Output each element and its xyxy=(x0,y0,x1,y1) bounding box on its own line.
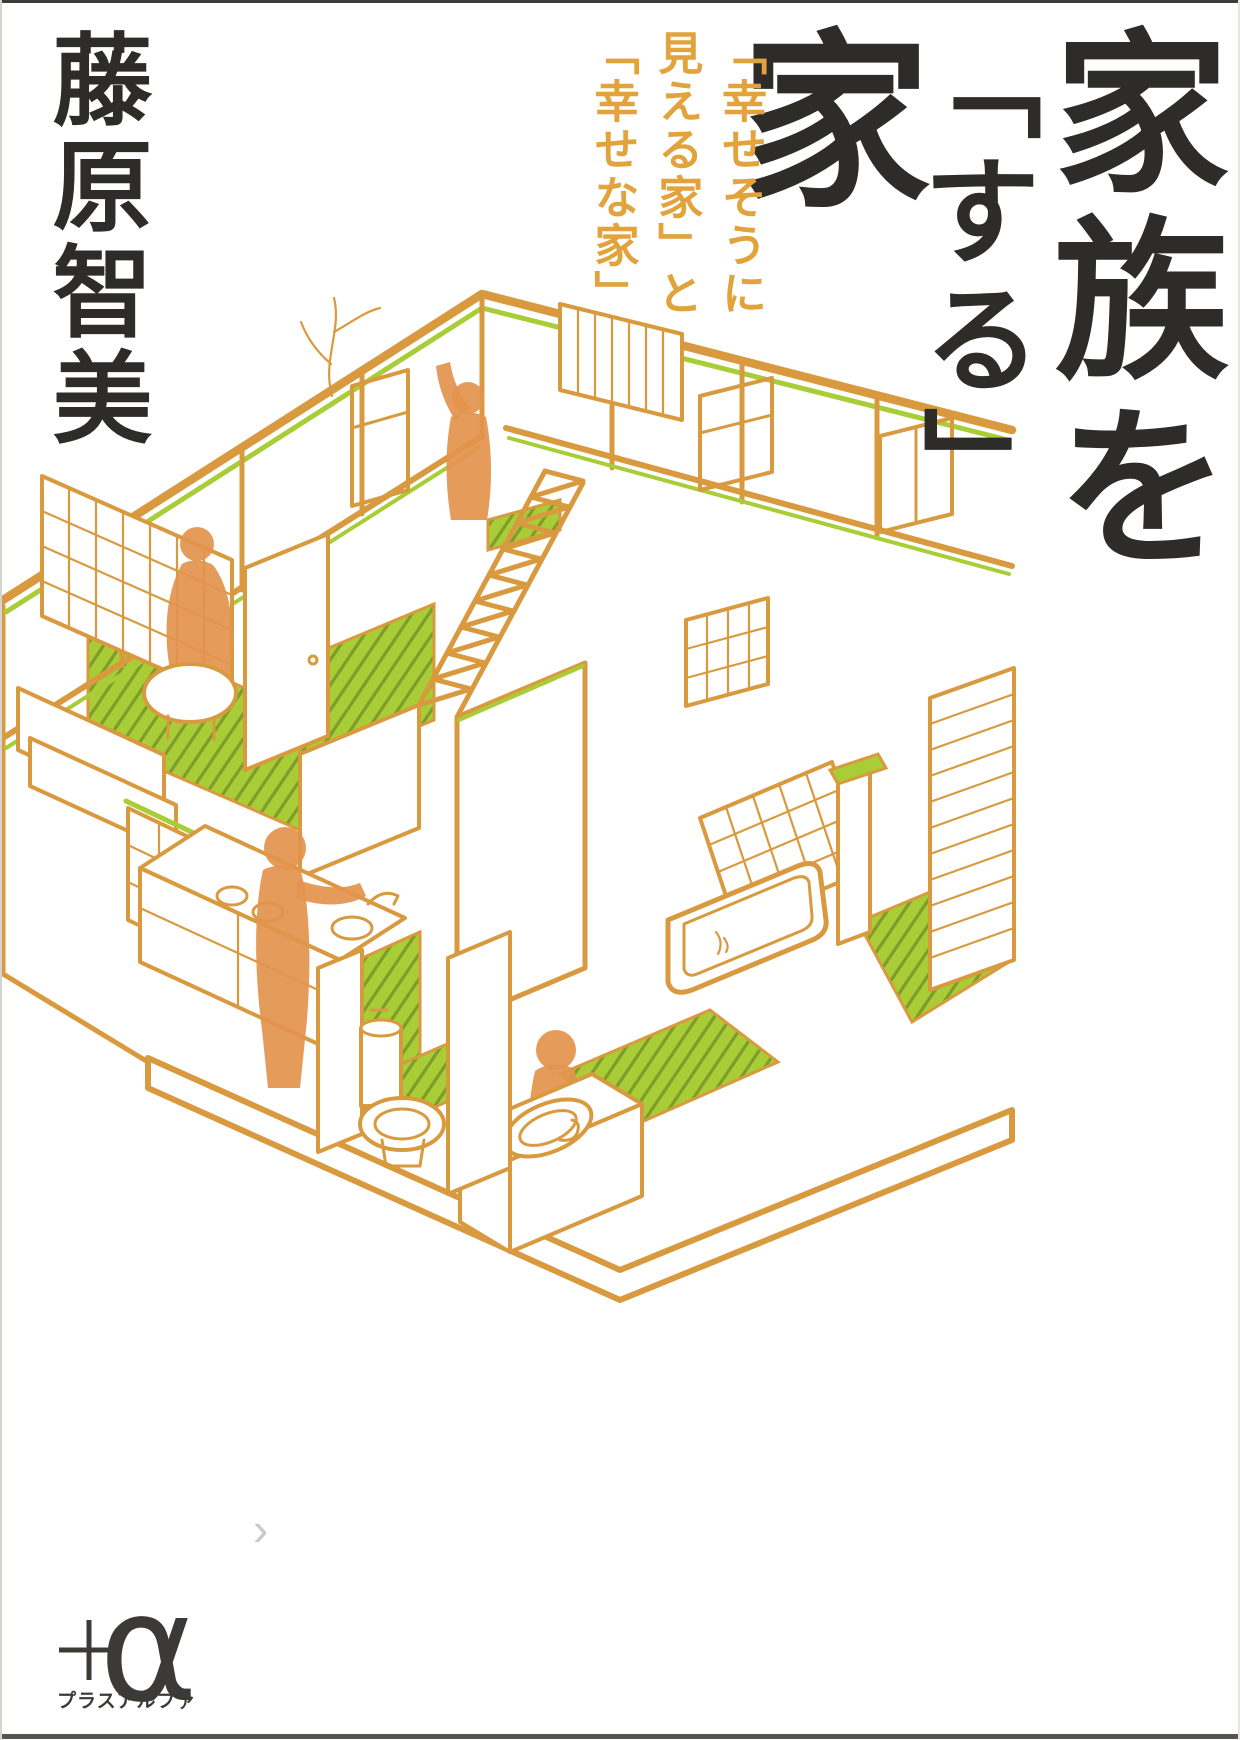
title-column-main: 家族を xyxy=(1037,22,1212,732)
subtitle-line-3: 「幸せな家」 xyxy=(587,30,639,360)
person-silhouette-kitchen xyxy=(264,827,306,869)
book-cover: 藤原智美 家族を 「する」家 「幸せそうに 見える家」と 「幸せな家」 xyxy=(0,0,1240,1740)
title-column-sub: 「する」家 xyxy=(721,22,1029,732)
author-name: 藤原智美 xyxy=(40,28,145,548)
toilet-bowl xyxy=(360,1098,444,1150)
cover-border-bottom xyxy=(0,1734,1240,1739)
subtitle-line-1: 「幸せそうに xyxy=(714,30,766,360)
cover-border-left xyxy=(0,0,2,1740)
cover-border-top xyxy=(0,0,1240,3)
book-title: 家族を 「する」家 xyxy=(713,22,1212,732)
subtitle-line-2: 見える家」と xyxy=(651,30,703,360)
toilet-tank xyxy=(361,1028,401,1106)
person-silhouette-washroom xyxy=(536,1030,576,1070)
sliding-door xyxy=(245,534,328,770)
title-sub-small: 「する」 xyxy=(905,22,1036,534)
vent-post xyxy=(838,768,870,944)
subtitle: 「幸せそうに 見える家」と 「幸せな家」 xyxy=(575,30,766,360)
carousel-next-icon[interactable]: › xyxy=(253,1506,268,1552)
round-table xyxy=(144,664,236,722)
title-main-text: 家族を xyxy=(1028,22,1222,583)
publisher-logo-caption: プラスアルファ xyxy=(57,1686,196,1713)
person-silhouette-sitting xyxy=(180,527,214,561)
